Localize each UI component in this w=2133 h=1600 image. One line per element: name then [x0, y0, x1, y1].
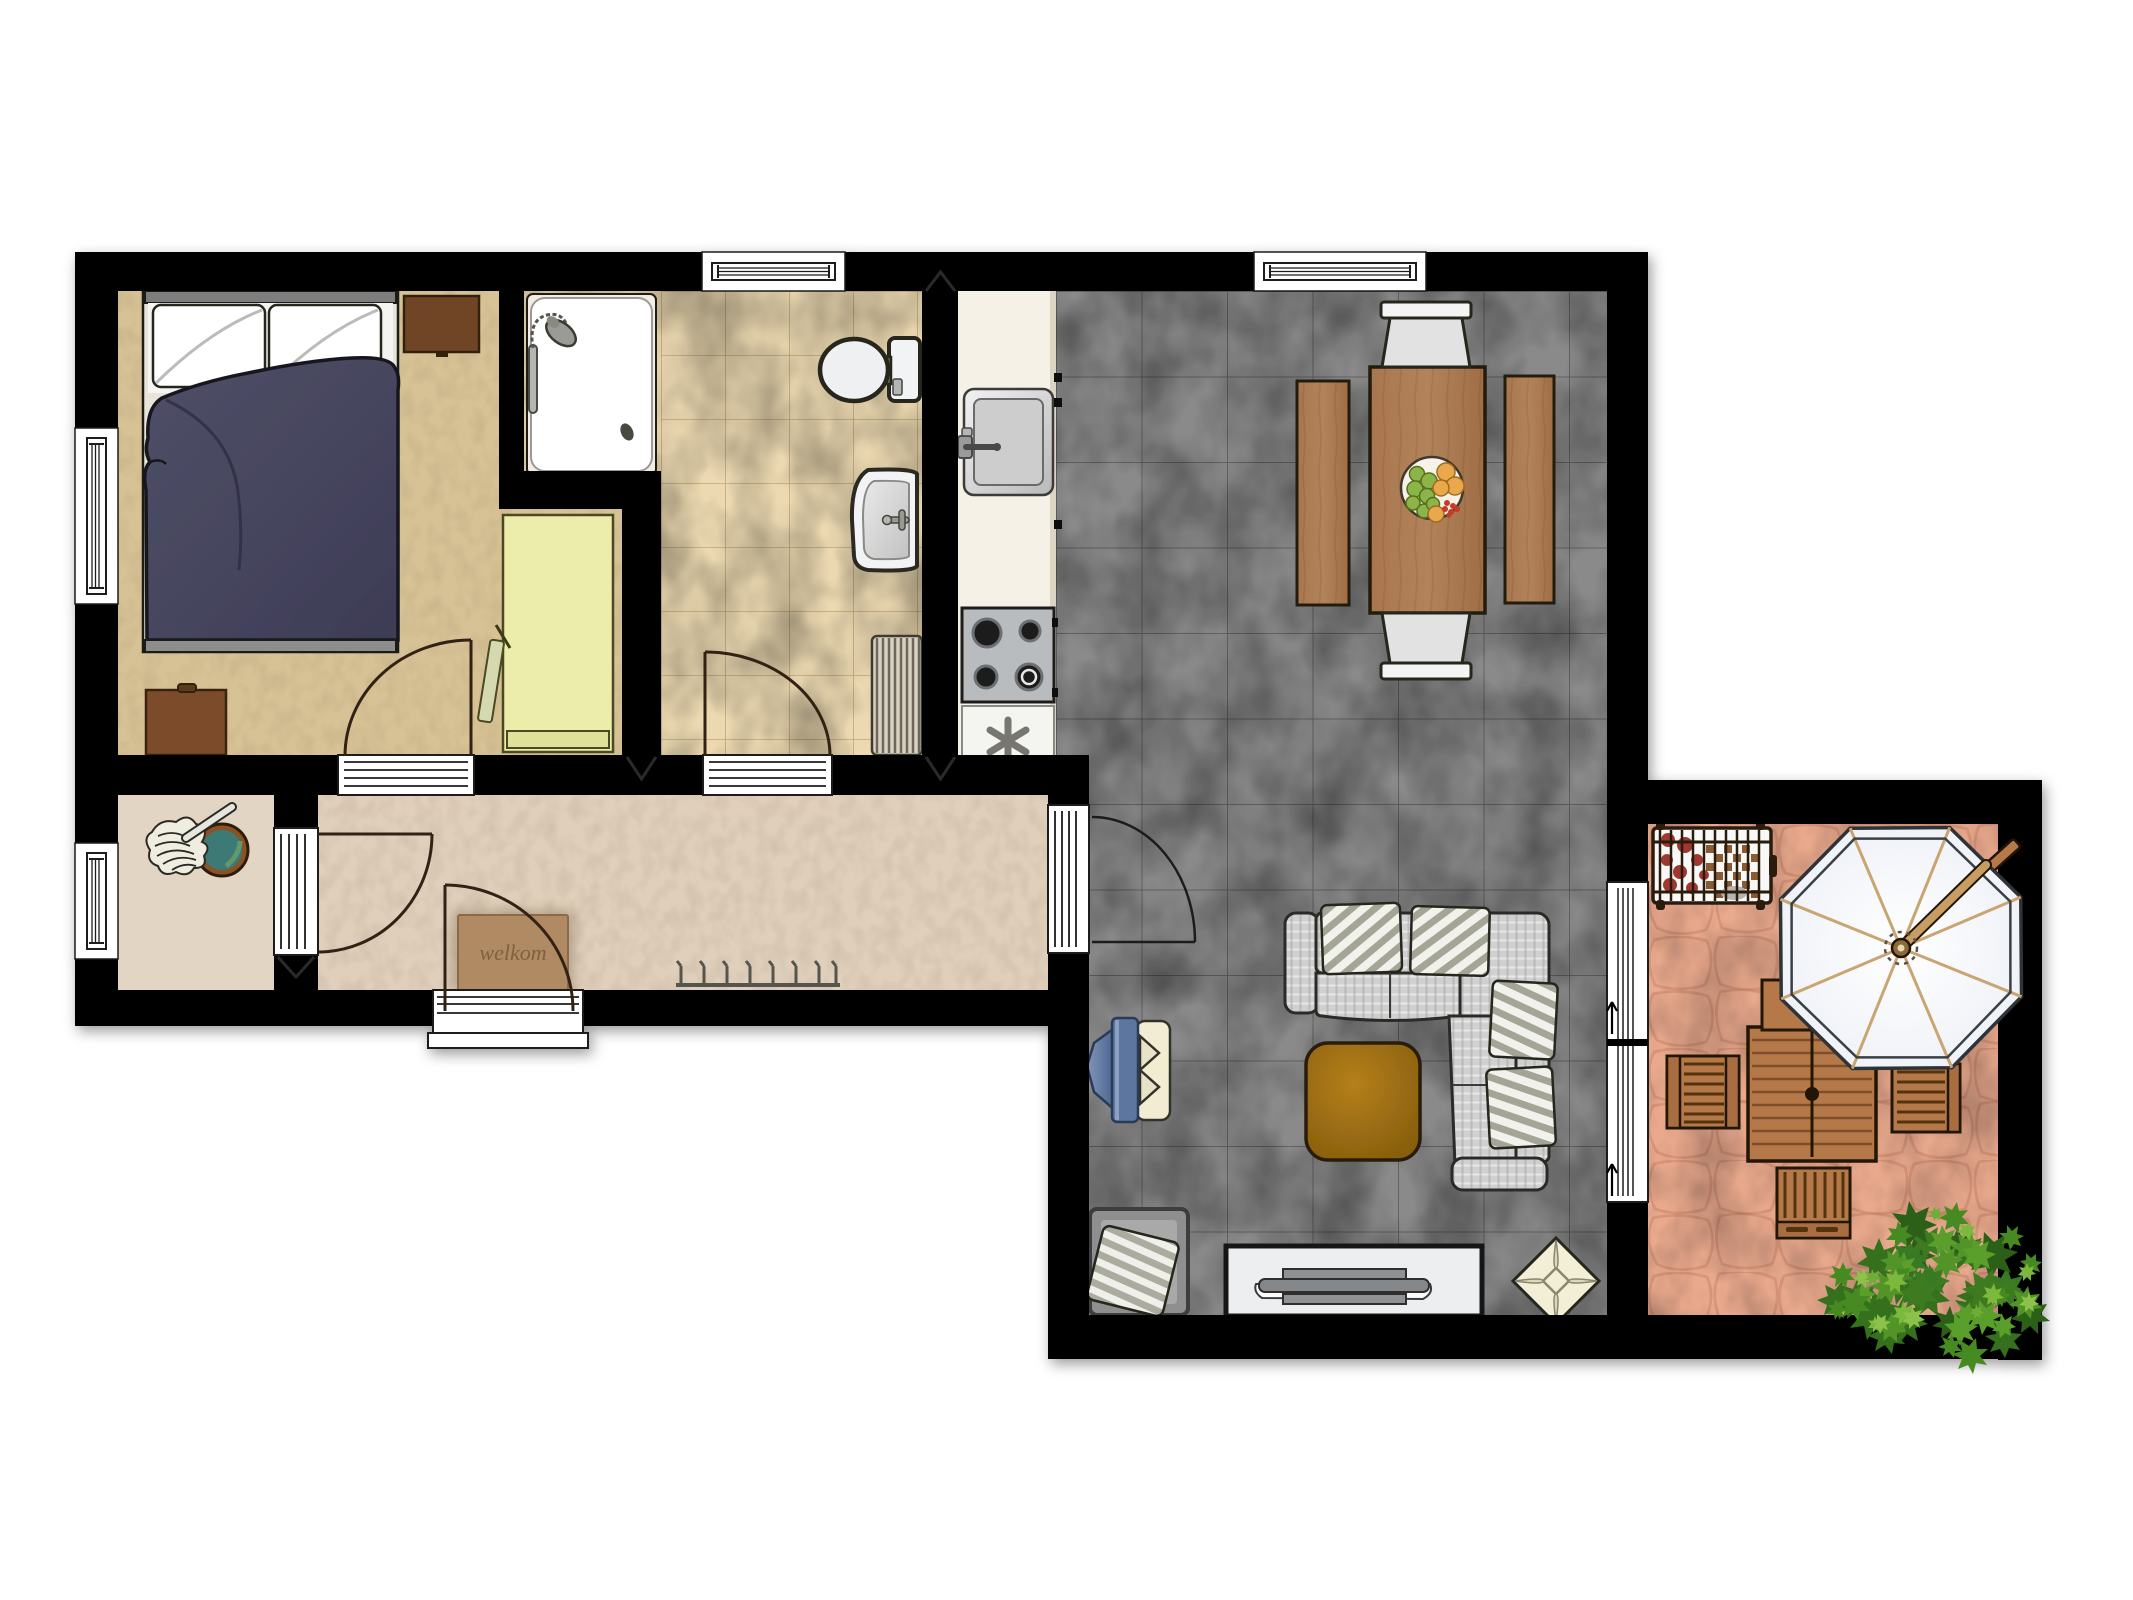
svg-text:welkom: welkom	[479, 940, 546, 965]
